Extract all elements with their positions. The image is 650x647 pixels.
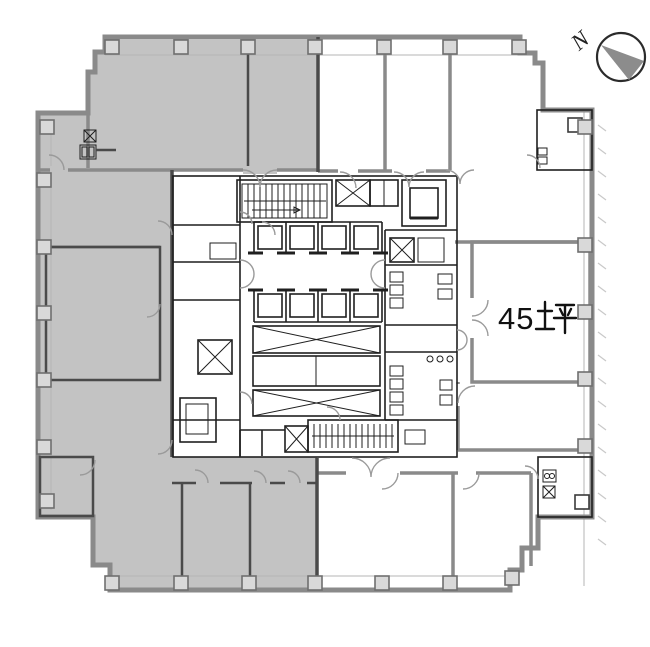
floor-plan: 45 N	[0, 0, 650, 647]
column	[575, 495, 589, 509]
floor-plan-svg: 45 N	[0, 0, 650, 647]
area-label-value: 45	[498, 301, 534, 336]
leased-area-west	[40, 170, 172, 457]
